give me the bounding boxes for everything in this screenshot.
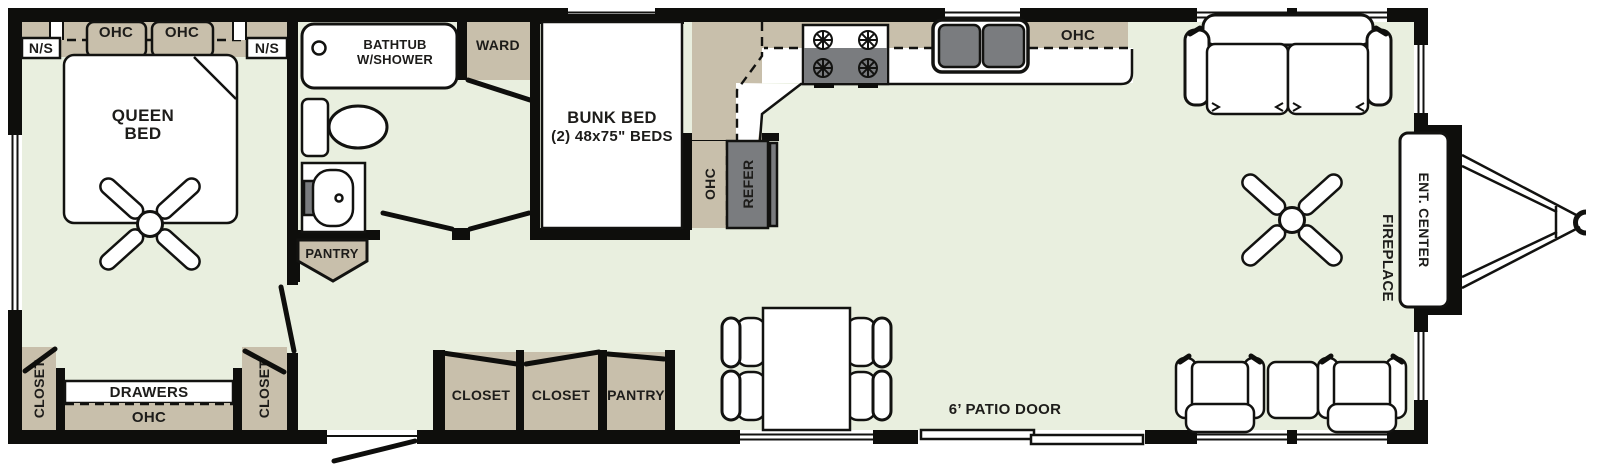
window-bedroom-side	[8, 135, 22, 310]
dining-table	[763, 308, 850, 430]
recliner-chair	[1318, 356, 1406, 432]
ohc-label: OHC	[1061, 27, 1095, 44]
bunk-bed-label: BUNK BED	[567, 109, 656, 127]
ward-label: WARD	[476, 37, 520, 53]
closet-label: CLOSET	[452, 387, 511, 403]
trailer-hitch	[1462, 155, 1586, 288]
patio-door[interactable]	[918, 430, 1145, 444]
bunk-bed-label: (2) 48x75" BEDS	[551, 128, 673, 145]
ns-label: N/S	[29, 40, 53, 56]
sofa	[1185, 15, 1391, 114]
ohc-label: OHC	[702, 168, 718, 200]
fireplace-label: FIREPLACE	[1379, 214, 1396, 302]
pantry-label: PANTRY	[607, 387, 665, 403]
ohc-label: OHC	[165, 24, 199, 41]
window-living-right-top	[1414, 45, 1428, 113]
ohc-label: OHC	[99, 24, 133, 41]
recliner-chair	[1176, 356, 1264, 432]
bathroom-sink	[302, 163, 365, 232]
bathtub-label: BATHTUB	[363, 37, 426, 52]
drain-icon	[313, 42, 326, 55]
floorplan-canvas: OHC OHC N/S N/S QUEEN BED CLOSET DRAWERS	[0, 0, 1600, 470]
closet-label: CLOSET	[532, 387, 591, 403]
queen-bed-label: QUEEN	[112, 106, 174, 125]
front-cap-hitch: ENT. CENTER	[1400, 125, 1586, 315]
pantry-label: PANTRY	[305, 246, 358, 261]
bunk-room: BUNK BED (2) 48x75" BEDS	[540, 14, 684, 228]
ohc-label: OHC	[132, 409, 166, 426]
closet-label: CLOSET	[31, 360, 47, 419]
window-living-right-bottom	[1414, 332, 1428, 400]
ns-label: N/S	[255, 40, 279, 56]
patio-door-label: 6’ PATIO DOOR	[949, 401, 1062, 418]
bunkroom-wall	[530, 8, 540, 240]
bathtub-label: W/SHOWER	[357, 52, 433, 67]
stove-cooktop	[803, 25, 888, 88]
side-table	[1268, 362, 1318, 418]
hitch-coupler-icon	[1576, 212, 1587, 233]
refrigerator-unit: OHC REFER	[692, 141, 777, 228]
drawers-label: DRAWERS	[110, 384, 189, 401]
refer-label: REFER	[740, 160, 756, 209]
entry-door[interactable]	[327, 430, 417, 461]
ent-center-label: ENT. CENTER	[1416, 172, 1432, 267]
window-dining	[740, 430, 873, 444]
closet-label: CLOSET	[256, 360, 272, 419]
queen-bed-label: BED	[124, 124, 161, 143]
rv-floorplan: OHC OHC N/S N/S QUEEN BED CLOSET DRAWERS	[0, 0, 1600, 470]
kitchen-sink	[933, 20, 1028, 72]
